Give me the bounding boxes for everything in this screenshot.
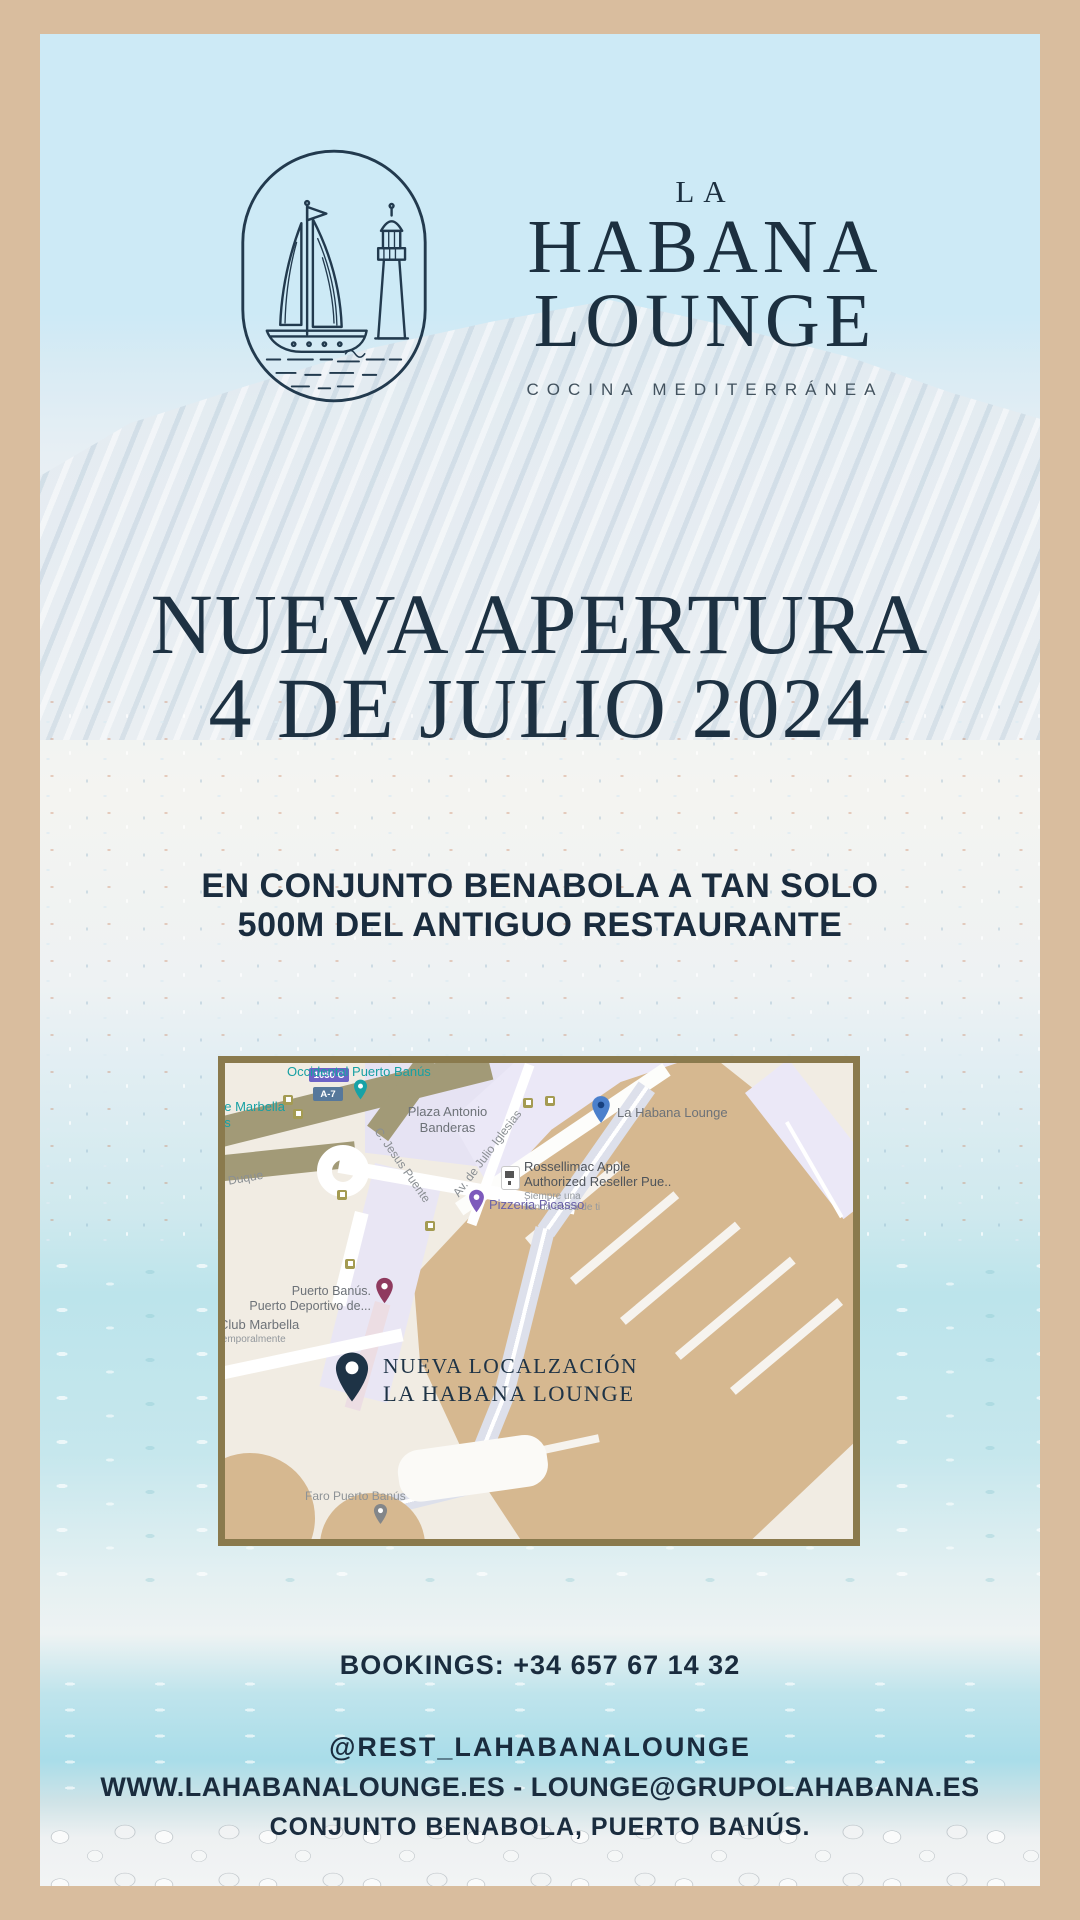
brand-wordmark: LA HABANA LOUNGE COCINA MEDITERRÁNEA <box>470 174 940 400</box>
sailboat-lighthouse-emblem-icon <box>238 146 430 406</box>
hotel-pin-icon <box>353 1079 368 1100</box>
instagram-handle: @REST_LAHABANALOUNGE <box>40 1732 1040 1763</box>
restaurant-pin-icon <box>468 1189 485 1213</box>
bus-stop-icon <box>293 1109 303 1119</box>
faro-label: Faro Puerto Banús <box>305 1489 406 1503</box>
bus-stop-icon <box>523 1098 533 1108</box>
puerto-banus-line1: Puerto Banús. <box>292 1284 371 1298</box>
brand-tagline: COCINA MEDITERRÁNEA <box>470 380 940 400</box>
headline-line1: NUEVA APERTURA <box>40 582 1040 666</box>
bus-stop-icon <box>545 1096 555 1106</box>
location-map: 1050 C A-7 Occidental Puerto Banús ge Ma… <box>218 1056 860 1546</box>
bookings-line: BOOKINGS: +34 657 67 14 32 <box>40 1650 1040 1681</box>
saved-place-pin-icon <box>591 1095 611 1124</box>
headline-line2: 4 DE JULIO 2024 <box>40 666 1040 750</box>
headline: NUEVA APERTURA 4 DE JULIO 2024 <box>40 582 1040 750</box>
marbella-label: ge Marbella <box>218 1099 285 1114</box>
poster: LA HABANA LOUNGE COCINA MEDITERRÁNEA NUE… <box>0 0 1080 1920</box>
poster-canvas: LA HABANA LOUNGE COCINA MEDITERRÁNEA NUE… <box>40 34 1040 1886</box>
club-marbella-label: Club Marbella <box>219 1317 299 1332</box>
hotel-label: Occidental Puerto Banús <box>287 1064 431 1079</box>
map-beach-circle <box>218 1453 315 1546</box>
new-location-callout: NUEVA LOCALZACIÓN LA HABANA LOUNGE <box>383 1353 638 1407</box>
brand-name-line2: LOUNGE <box>470 284 940 358</box>
address-line: CONJUNTO BENABOLA, PUERTO BANÚS. <box>40 1813 1040 1842</box>
a7-road-badge: A-7 <box>313 1087 343 1101</box>
subheadline-line1: EN CONJUNTO BENABOLA A TAN SOLO <box>40 867 1040 906</box>
bus-stop-icon <box>345 1259 355 1269</box>
puerto-banus-line2: Puerto Deportivo de... <box>249 1299 371 1313</box>
bus-stop-icon <box>425 1221 435 1231</box>
plaza-label: Plaza Antonio Banderas <box>390 1104 505 1136</box>
website-email-line: WWW.LAHABANALOUNGE.ES - LOUNGE@GRUPOLAHA… <box>40 1772 1040 1803</box>
store-icon <box>501 1166 520 1190</box>
subheadline: EN CONJUNTO BENABOLA A TAN SOLO 500M DEL… <box>40 867 1040 945</box>
apple-store-line2: Authorized Reseller Pue.. <box>524 1174 671 1189</box>
habana-pin-label: La Habana Lounge <box>617 1105 728 1120</box>
bus-stop-icon <box>337 1190 347 1200</box>
lighthouse-pin-icon <box>373 1503 388 1525</box>
marbella-label2: os <box>218 1115 231 1130</box>
subheadline-line2: 500M DEL ANTIGUO RESTAURANTE <box>40 906 1040 945</box>
plaza-label-line1: Plaza Antonio <box>408 1104 488 1119</box>
new-location-line1: NUEVA LOCALZACIÓN <box>383 1353 638 1380</box>
brand-name-line1: HABANA <box>470 210 940 284</box>
plaza-label-line2: Banderas <box>420 1120 476 1135</box>
apple-store-line1: Rossellimac Apple <box>524 1159 630 1174</box>
pizzeria-label: Pizzeria Picasso <box>489 1197 584 1212</box>
apple-store-label: Rossellimac Apple Authorized Reseller Pu… <box>524 1159 671 1189</box>
bus-stop-icon <box>283 1095 293 1105</box>
club-marbella-sub: temporalmente <box>219 1334 286 1345</box>
anchor-pin-icon <box>375 1277 394 1304</box>
new-location-pin-icon <box>333 1351 371 1403</box>
new-location-line2: LA HABANA LOUNGE <box>383 1380 638 1407</box>
puerto-banus-label: Puerto Banús. Puerto Deportivo de... <box>243 1284 371 1314</box>
